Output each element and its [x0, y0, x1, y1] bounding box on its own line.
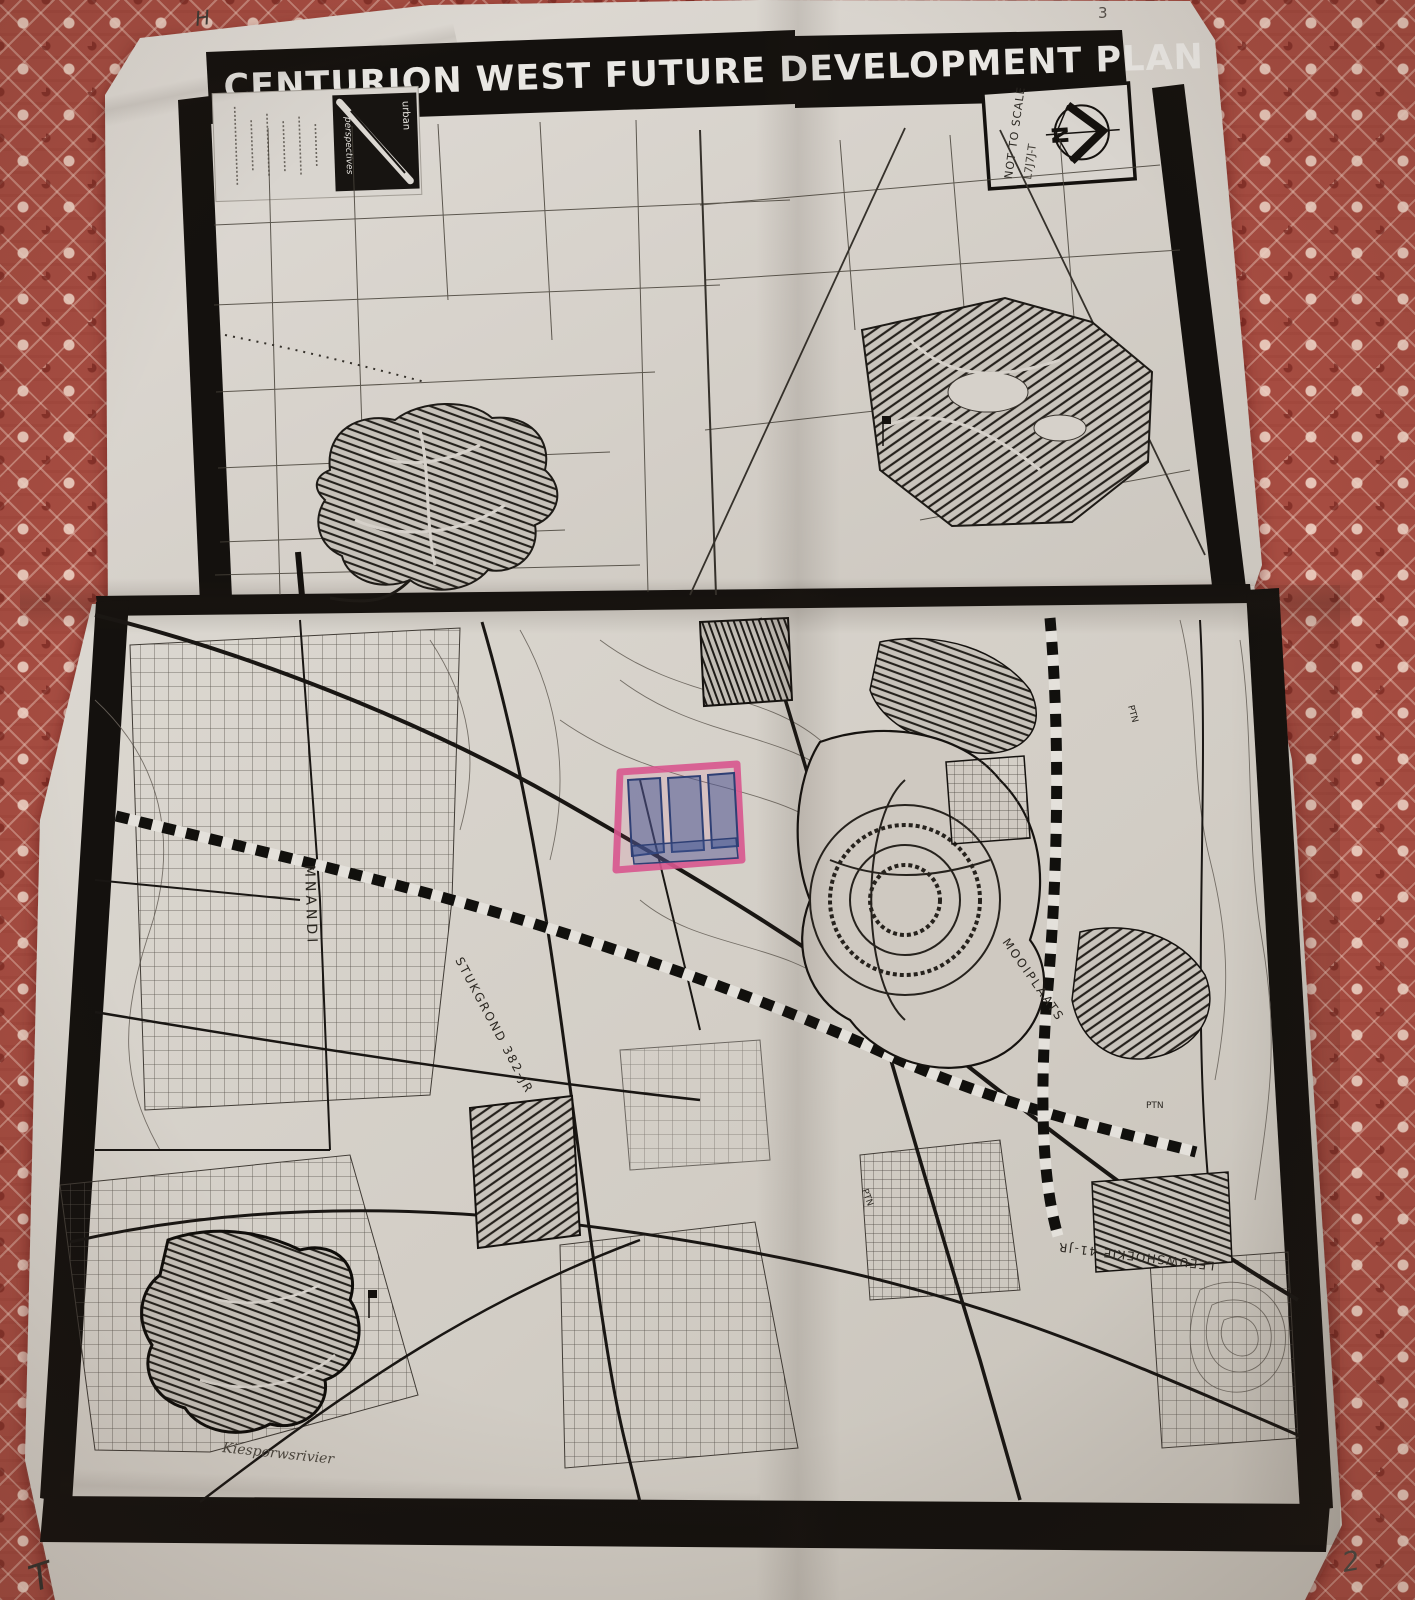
- map-photo-svg: CENTURION WEST FUTURE DEVELOPMENT PLAN u…: [0, 0, 1415, 1600]
- paper-creases: [0, 0, 1415, 1600]
- photo-of-map-on-fabric: CENTURION WEST FUTURE DEVELOPMENT PLAN u…: [0, 0, 1415, 1600]
